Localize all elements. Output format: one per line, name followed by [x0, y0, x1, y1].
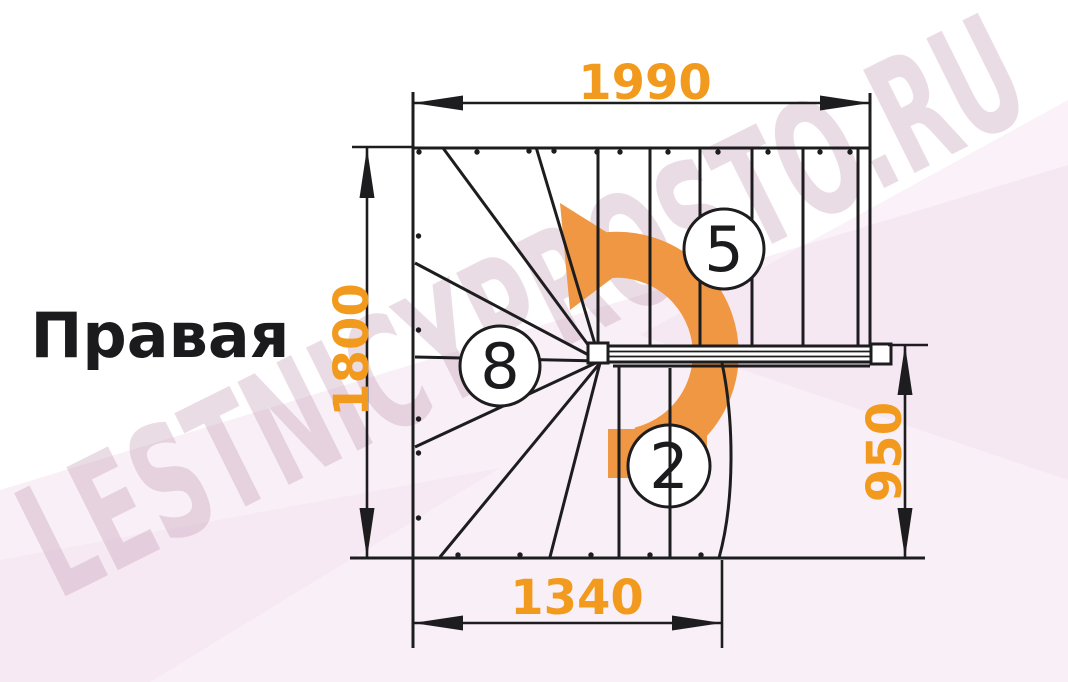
staircase-plan-page: LESTNICYPROSTO.RU [0, 0, 1068, 682]
dimension-label-overall-depth: 1800 [324, 283, 380, 417]
diagram-title: Правая [31, 299, 290, 372]
dimension-arrowhead [413, 96, 463, 111]
dimension-label-overall-width: 1990 [578, 55, 712, 111]
step-count-upper-flight: 5 [704, 213, 743, 286]
staircase-plan-drawing: LESTNICYPROSTO.RU [0, 0, 1068, 682]
step-count-winder-fan: 8 [480, 330, 519, 403]
newel-post-left [588, 343, 608, 363]
dimension-arrowhead [360, 148, 375, 198]
dimension-label-landing-offset: 950 [857, 402, 913, 502]
newel-post-right [871, 344, 891, 364]
dimension-label-lower-flight-width: 1340 [510, 570, 644, 626]
handrail-plank [591, 346, 886, 362]
step-count-lower-flight: 2 [649, 430, 688, 503]
landing-handrail-bar [588, 343, 891, 366]
